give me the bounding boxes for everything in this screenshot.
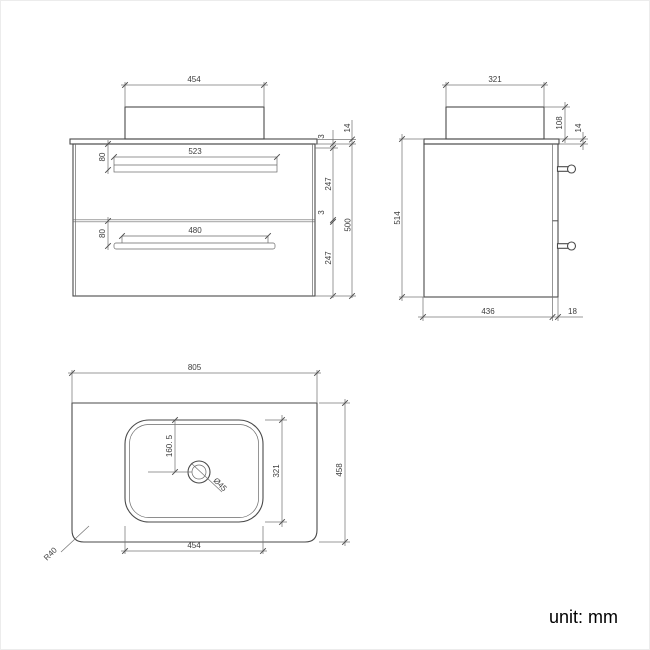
plan-basin-outer [125,420,263,522]
vanity-dimension-drawing: 454 523 80 480 80 [0,0,650,650]
side-dim-514-label: 514 [393,211,402,225]
side-dim-321-label: 321 [488,75,502,84]
front-dim-500-label: 500 [344,218,353,232]
front-drawer1-handle [114,157,277,172]
front-dim-14-label: 14 [343,123,352,132]
front-dim-80b-label: 80 [98,229,107,238]
side-knob1-stem [558,167,569,172]
front-dim-247b-label: 247 [324,251,333,265]
unit-label: unit: mm [549,607,639,628]
front-dim-454-label: 454 [187,75,201,84]
front-countertop [70,139,317,144]
plan-dim-radius-label: R40 [42,545,59,562]
front-dim-480-label: 480 [188,226,202,235]
side-knob2-stem [558,244,569,249]
plan-dim-drain-label: Ø45 [212,476,229,493]
plan-dim-321-label: 321 [272,464,281,478]
front-dim-247a-label: 247 [324,177,333,191]
plan-radius-leader [61,526,89,552]
side-dim-436-label: 436 [481,307,495,316]
side-cabinet [424,144,558,297]
front-dim-3b-label: 3 [317,210,326,215]
front-drawer2-handle-bar [114,243,275,249]
side-dim-108-label: 108 [555,116,564,130]
plan-basin-inner [130,425,259,518]
plan-view: 805 454 321 458 [42,363,350,562]
side-countertop [424,139,559,144]
plan-drain-inner [192,465,206,479]
technical-drawing-page: 454 523 80 480 80 [0,0,650,650]
side-dim-14-label: 14 [574,123,583,132]
plan-dim-454-label: 454 [187,541,201,550]
side-view: 321 108 14 514 [393,75,588,321]
plan-dim-805-label: 805 [188,363,202,372]
front-basin-outline [125,107,264,139]
front-dim-80a-label: 80 [98,152,107,161]
front-dim-523-label: 523 [188,147,202,156]
front-view: 454 523 80 480 80 [70,75,356,299]
side-knob2 [568,242,576,250]
side-basin-outline [446,107,544,139]
side-dim-18-label: 18 [568,307,577,316]
plan-dim-160-5-label: 160. 5 [165,434,174,457]
front-dim-3a-label: 3 [317,134,326,139]
side-knob1 [568,165,576,173]
plan-dim-458-label: 458 [335,463,344,477]
